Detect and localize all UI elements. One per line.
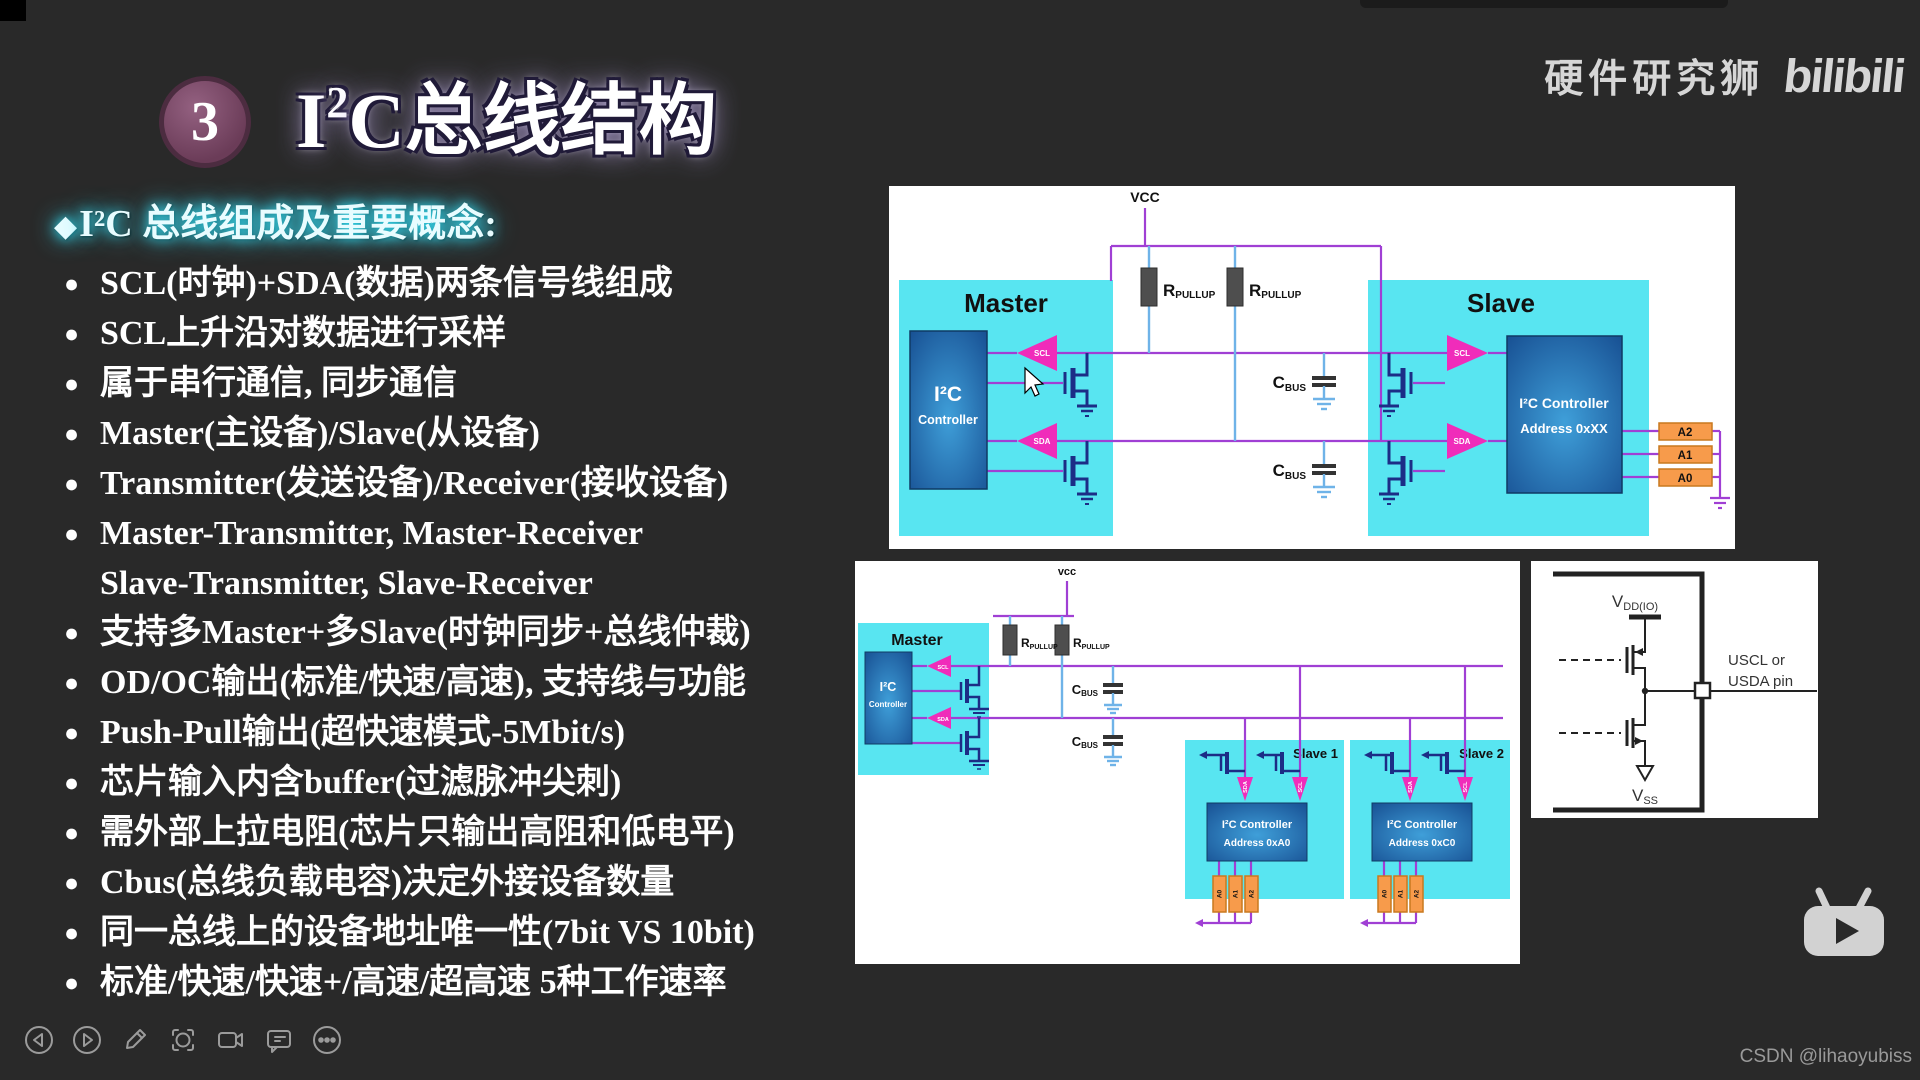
master-label: Master [891,632,943,649]
pointer-button[interactable] [165,1022,201,1058]
pin-label: A0 [1217,889,1224,898]
bullet-marker: ● [64,759,100,808]
list-item: ●SCL上升沿对数据进行采样 [54,309,884,359]
pin-label: A1 [1398,889,1405,898]
pencil-icon [117,1022,153,1058]
brand-row: 硬件研究狮 bilibili [1544,48,1904,104]
list-item: ●OD/OC输出(标准/快速/高速), 支持线与功能 [54,658,884,708]
scl-buffer-label: SCL [1454,349,1470,358]
diagram-pin-stage: VDD(IO) USCL or USDA pin VSS [1531,561,1818,818]
diagram-master-slave: Master Slave RPULLUP RP [889,186,1735,549]
diamond-marker: ◆ [54,210,77,243]
previous-button[interactable] [21,1022,57,1058]
video-camera-icon [213,1022,249,1058]
previous-icon [21,1022,57,1058]
list-item: ●支持多Master+多Slave(时钟同步+总线仲裁) [54,608,884,658]
player-toolbar [21,1022,345,1058]
title-pre: I [296,77,326,164]
list-item: ●芯片输入内含buffer(过滤脉冲尖刺) [54,758,884,808]
list-item: ●Cbus(总线负载电容)决定外接设备数量 [54,858,884,908]
sda-buffer-label: SDA [1034,437,1051,446]
bullet-marker: ● [64,709,100,758]
i2c-label: I²C [880,680,897,694]
bullet-marker: ● [64,410,100,459]
list-item: ●SCL(时钟)+SDA(数据)两条信号线组成 [54,259,884,309]
list-item: ●Push-Pull输出(超快速模式-5Mbit/s) [54,708,884,758]
list-item: Slave-Transmitter, Slave-Receiver [54,559,884,608]
section-number-badge: 3 [159,76,251,168]
more-dots-icon [309,1022,345,1058]
next-icon [69,1022,105,1058]
controller-label: Controller [918,413,978,427]
slave-label: Slave [1467,288,1535,318]
bullet-text: 同一总线上的设备地址唯一性(7bit VS 10bit) [100,914,755,951]
pin-label: A2 [1249,889,1256,898]
letterbox-corner [0,0,26,21]
list-item: ●属于串行通信, 同步通信 [54,359,884,409]
master-i2c-controller: I²C Controller [865,652,912,744]
bullet-marker: ● [64,659,100,708]
concept-list: ◆I²C 总线组成及重要概念: ●SCL(时钟)+SDA(数据)两条信号线组成 … [54,200,884,1008]
bullet-text: Cbus(总线负载电容)决定外接设备数量 [100,864,674,901]
bullet-marker: ● [64,260,100,309]
chat-bubble-icon [261,1022,297,1058]
list-item: ●Transmitter(发送设备)/Receiver(接收设备) [54,459,884,509]
page-title: I2C总线结构 [296,58,717,170]
master-i2c-controller: I²C Controller [910,331,987,489]
pin-a2-label: A2 [1678,427,1693,439]
pin-name-line2: USDA pin [1728,673,1793,690]
sda-buffer-label: SDA [1408,781,1414,793]
bilibili-logo: bilibili [1781,48,1907,103]
bullet-text: Master-Transmitter, Master-Receiver [100,515,643,552]
list-item: ●标准/快速/快速+/高速/超高速 5种工作速率 [54,958,884,1008]
bullet-marker: ● [64,809,100,858]
list-item: ●Master-Transmitter, Master-Receiver [54,509,884,559]
pin-label: A2 [1414,889,1421,898]
sda-buffer-label: SDA [937,717,949,723]
bullet-text: 支持多Master+多Slave(时钟同步+总线仲裁) [100,614,751,651]
master-label: Master [964,288,1048,318]
controller-label: Controller [869,700,907,709]
slave1-controller-label: I²C Controller [1222,819,1293,831]
bullet-text: Transmitter(发送设备)/Receiver(接收设备) [100,465,728,502]
slave2-address-label: Address 0xC0 [1389,838,1456,849]
bullet-marker: ● [64,859,100,908]
bullet-marker: ● [64,609,100,658]
list-heading: ◆I²C 总线组成及重要概念: [54,200,884,251]
scl-buffer-label: SCL [1463,781,1469,793]
comments-button[interactable] [261,1022,297,1058]
scl-buffer-label: SCL [938,665,950,671]
next-button[interactable] [69,1022,105,1058]
bullet-text: SCL(时钟)+SDA(数据)两条信号线组成 [100,265,673,302]
bilibili-tv-icon [1800,882,1888,960]
slave-controller-label: I²C Controller [1519,395,1609,411]
diagram-multi-slave: Master Slave 1 Slave 2 [855,561,1520,964]
channel-name: 硬件研究狮 [1544,48,1764,104]
slave2-controller-label: I²C Controller [1387,819,1458,831]
bullet-marker: ● [64,310,100,359]
bullet-text: 需外部上拉电阻(芯片只输出高阻和低电平) [100,814,735,851]
scl-buffer-label: SCL [1034,349,1050,358]
bullet-marker: ● [64,909,100,958]
slave-i2c-controller: I²C Controller Address 0xXX [1507,336,1622,493]
slave1-address-label: Address 0xA0 [1224,838,1291,849]
pin-label: A1 [1233,889,1240,898]
scl-buffer-label: SCL [1298,781,1304,793]
vcc-label: VCC [1130,189,1160,205]
sda-buffer-label: SDA [1454,437,1471,446]
pin-name-line1: USCL or [1728,652,1785,669]
pin-a1-label: A1 [1678,450,1693,462]
title-post: C总线结构 [348,77,716,164]
more-button[interactable] [309,1022,345,1058]
camera-button[interactable] [213,1022,249,1058]
bullet-marker: ● [64,360,100,409]
bullet-text: Slave-Transmitter, Slave-Receiver [100,565,593,602]
section-number: 3 [191,90,219,154]
heading-text: I²C 总线组成及重要概念: [79,203,497,245]
bullet-marker: ● [64,959,100,1008]
bullet-text: 芯片输入内含buffer(过滤脉冲尖刺) [100,764,621,801]
bullet-marker: ● [64,510,100,559]
bullet-text: Push-Pull输出(超快速模式-5Mbit/s) [100,714,625,751]
csdn-watermark: CSDN @lihaoyubiss [1740,1046,1912,1068]
list-item: ●Master(主设备)/Slave(从设备) [54,409,884,459]
pin-a0-label: A0 [1678,473,1693,485]
top-strip [1360,0,1728,8]
title-sup: 2 [326,78,348,127]
list-item: ●同一总线上的设备地址唯一性(7bit VS 10bit) [54,908,884,958]
address-pins: A2 A1 A0 [1659,423,1712,486]
i2c-label: I²C [934,383,962,406]
vcc-label: vcc [1058,566,1076,578]
laser-pointer-icon [165,1022,201,1058]
annotate-button[interactable] [117,1022,153,1058]
bullet-text: 属于串行通信, 同步通信 [100,365,457,402]
sda-buffer-label: SDA [1243,781,1249,793]
list-item: ●需外部上拉电阻(芯片只输出高阻和低电平) [54,808,884,858]
bullet-text: Master(主设备)/Slave(从设备) [100,415,540,452]
bullet-marker: ● [64,460,100,509]
bullet-text: SCL上升沿对数据进行采样 [100,315,506,352]
slave-address-label: Address 0xXX [1520,421,1608,436]
bullet-text: OD/OC输出(标准/快速/高速), 支持线与功能 [100,664,746,701]
bullet-text: 标准/快速/快速+/高速/超高速 5种工作速率 [100,964,727,1001]
pin-label: A0 [1382,889,1389,898]
